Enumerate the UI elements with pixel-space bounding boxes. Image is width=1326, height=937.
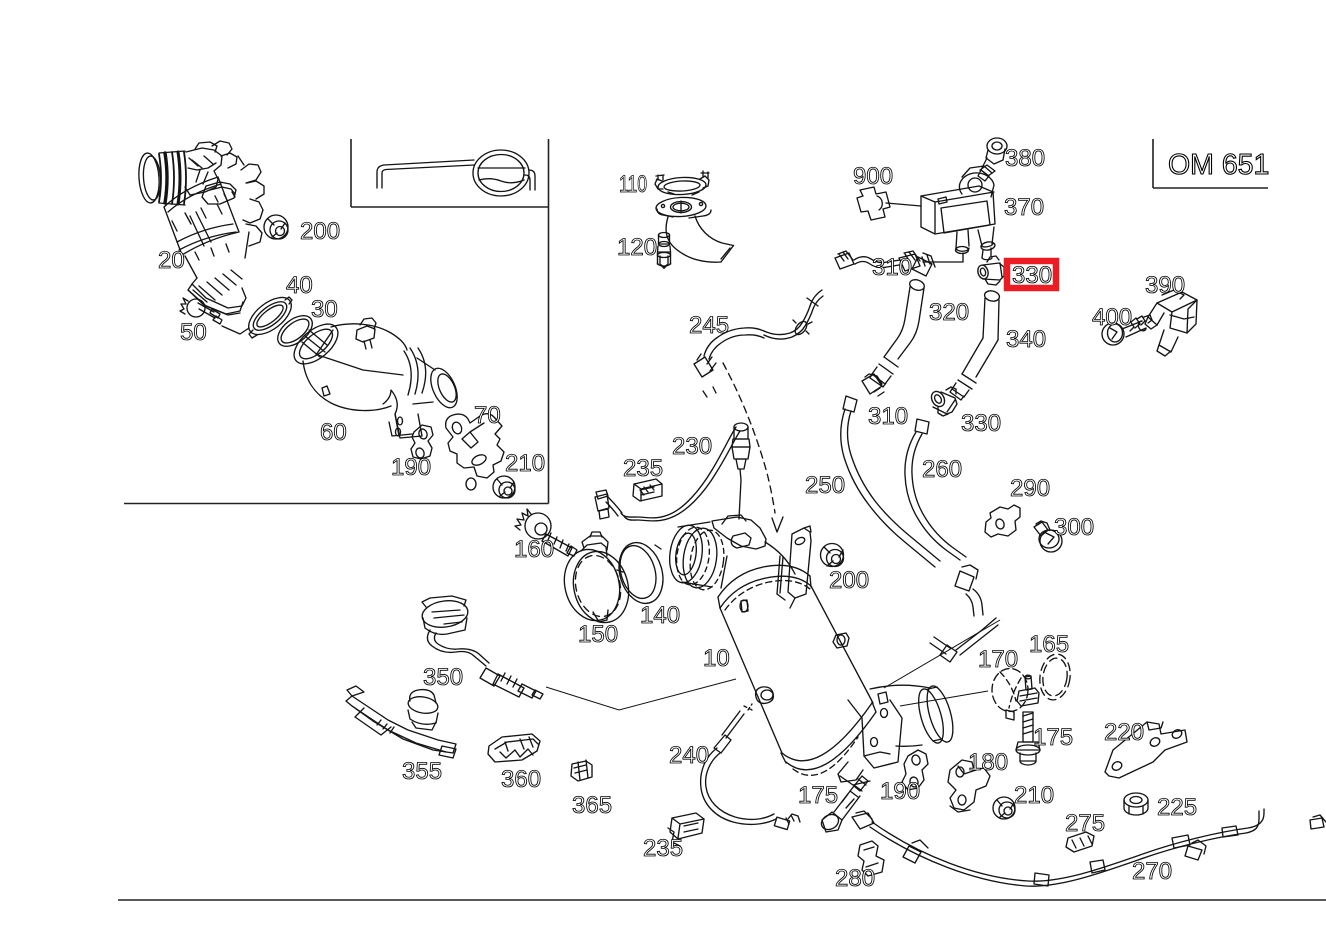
svg-text:220: 220 [1104,719,1144,746]
svg-text:175: 175 [1033,724,1073,751]
svg-text:900: 900 [853,163,893,190]
svg-text:300: 300 [1054,514,1094,541]
svg-text:360: 360 [501,766,541,793]
svg-text:310: 310 [868,403,908,430]
svg-text:50: 50 [180,319,207,346]
svg-text:240: 240 [669,742,709,769]
svg-text:270: 270 [1132,858,1172,885]
svg-text:290: 290 [1010,475,1050,502]
svg-text:245: 245 [689,312,729,339]
svg-text:160: 160 [514,536,554,563]
svg-text:210: 210 [1014,782,1054,809]
svg-text:140: 140 [640,602,680,629]
svg-text:310: 310 [872,254,912,281]
svg-text:380: 380 [1005,145,1045,172]
svg-text:330: 330 [1012,262,1052,289]
svg-text:10: 10 [703,645,730,672]
svg-text:OM 651: OM 651 [1168,149,1269,181]
svg-text:390: 390 [1145,272,1185,299]
svg-text:120: 120 [617,234,657,261]
svg-text:280: 280 [835,865,875,892]
svg-text:350: 350 [423,664,463,691]
svg-text:200: 200 [300,218,340,245]
svg-text:40: 40 [286,272,313,299]
svg-text:30: 30 [311,296,338,323]
svg-text:225: 225 [1157,794,1197,821]
svg-text:110: 110 [619,171,647,198]
svg-text:70: 70 [474,402,501,429]
svg-text:190: 190 [391,454,431,481]
svg-text:365: 365 [572,792,612,819]
svg-text:20: 20 [158,247,185,274]
svg-text:190: 190 [880,778,920,805]
svg-text:170: 170 [978,646,1018,673]
svg-text:180: 180 [968,749,1008,776]
svg-text:340: 340 [1006,326,1046,353]
svg-text:150: 150 [578,621,618,648]
svg-text:400: 400 [1092,304,1132,331]
svg-text:235: 235 [623,455,663,482]
svg-text:230: 230 [672,433,712,460]
svg-text:200: 200 [829,567,869,594]
svg-text:275: 275 [1065,810,1105,837]
svg-text:330: 330 [961,410,1001,437]
svg-text:320: 320 [929,299,969,326]
svg-text:210: 210 [505,450,545,477]
svg-text:355: 355 [402,758,442,785]
svg-text:165: 165 [1029,631,1069,658]
svg-text:235: 235 [643,835,683,862]
svg-text:250: 250 [805,472,845,499]
svg-text:260: 260 [922,456,962,483]
svg-text:175: 175 [798,782,838,809]
svg-text:370: 370 [1004,194,1044,221]
svg-text:60: 60 [320,419,347,446]
